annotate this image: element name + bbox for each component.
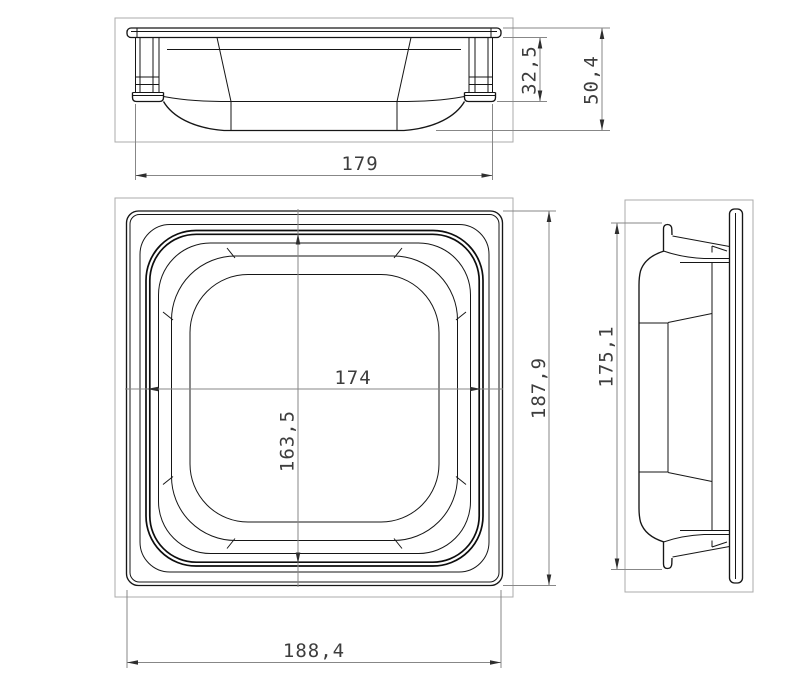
front-right-foot-lines [465, 93, 496, 96]
dim-label-front-overall-height: 50,4 [581, 55, 603, 105]
side-wall-inner-lines [640, 323, 669, 472]
plan-outer-edge-inner [130, 215, 499, 583]
dim-label-plan-opening-depth: 163,5 [277, 410, 299, 472]
front-left-skirt-band [136, 77, 160, 85]
plan-flange-inner-edge [140, 225, 489, 573]
plan-outer-edge [127, 211, 503, 586]
dim-label-plan-overall-depth: 187,9 [528, 357, 550, 419]
dim-label-plan-overall-width: 188,4 [283, 640, 345, 662]
dim-label-front-width: 179 [341, 153, 378, 175]
dim-side-flange-height: 175,1 [596, 223, 663, 570]
front-view-frame [115, 18, 513, 142]
plan-wall-bottom-edge [172, 256, 458, 541]
dim-label-front-rim-height: 32,5 [519, 45, 541, 95]
dim-plan-overall-depth: 187,9 [503, 211, 556, 586]
plan-rim-opening-outer [146, 231, 483, 567]
plan-bowl-bottom [190, 275, 439, 523]
side-wall-slope-lines [668, 263, 712, 531]
front-left-taper-line [217, 38, 231, 131]
dim-label-side-flange-height: 175,1 [596, 325, 618, 387]
plan-view [127, 211, 503, 586]
drawing-canvas: 179 32,5 50,4 174 163,5 187,9 [0, 0, 802, 698]
front-flange-cap-lines [137, 29, 491, 38]
dim-plan-opening-depth: 163,5 [277, 209, 301, 587]
front-left-foot [133, 93, 164, 102]
plan-corner-chamfers [163, 248, 466, 549]
front-flange-outline [127, 28, 501, 38]
dim-front-rim-height: 32,5 [497, 38, 547, 102]
front-right-skirt-band [469, 77, 493, 85]
plan-rim-opening-inner [150, 234, 479, 562]
side-bowl-outline [639, 251, 664, 542]
front-bowl-inner-bottom [164, 97, 465, 102]
side-top-lug [664, 225, 730, 263]
front-left-foot-lines [133, 93, 164, 96]
dim-plan-opening-width: 174 [125, 367, 503, 391]
front-right-foot [465, 93, 496, 102]
side-view-frame [625, 200, 753, 592]
technical-drawing: 179 32,5 50,4 174 163,5 187,9 [0, 0, 802, 698]
front-right-taper-line [397, 38, 411, 131]
plan-wall-top-edge [159, 243, 471, 554]
dim-plan-overall-width: 188,4 [127, 590, 501, 668]
front-view [127, 28, 501, 131]
side-bottom-lug [664, 531, 730, 569]
front-bowl-outline [164, 102, 465, 131]
side-view [639, 209, 743, 583]
dim-label-plan-opening-width: 174 [334, 367, 371, 389]
